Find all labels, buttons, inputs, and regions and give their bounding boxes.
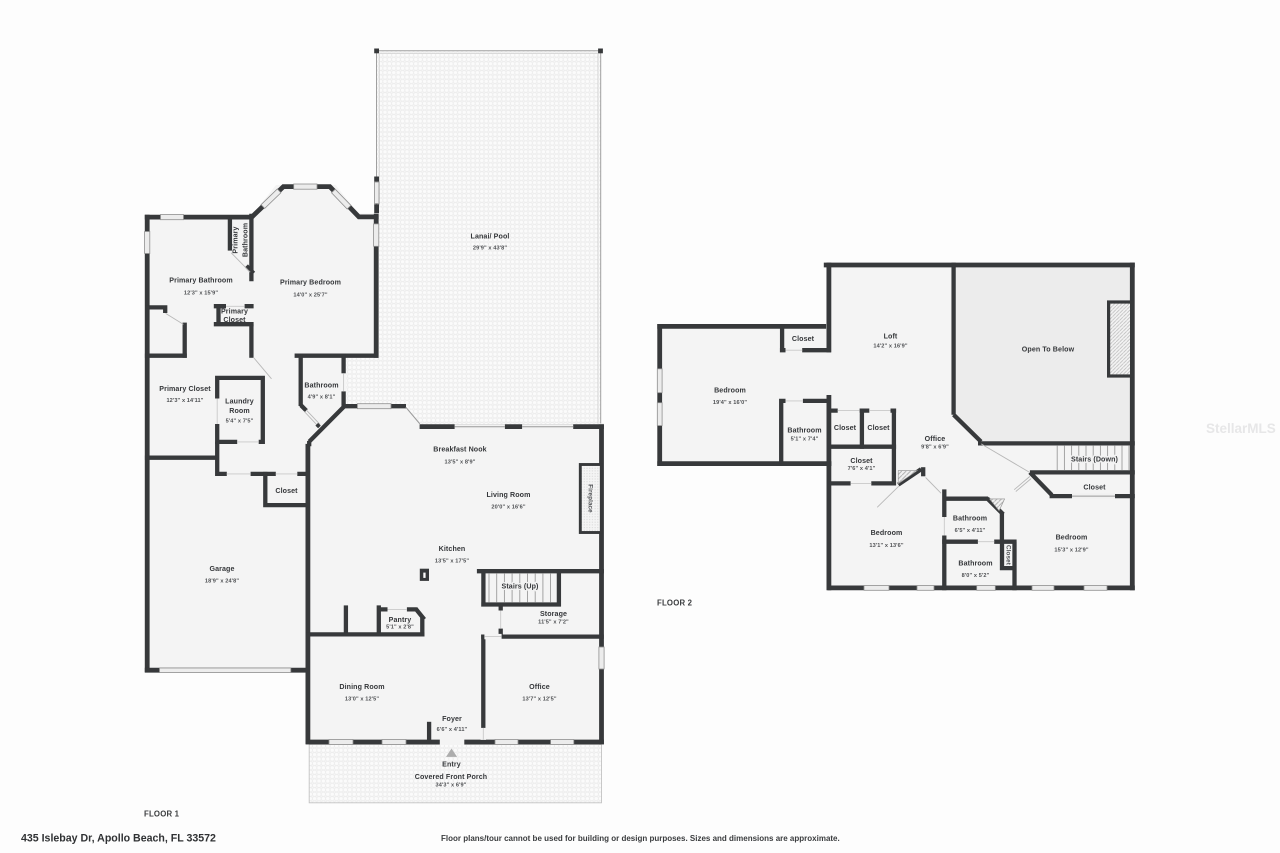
svg-text:Closet: Closet: [275, 487, 298, 495]
svg-text:Primary Bedroom: Primary Bedroom: [280, 279, 341, 287]
svg-text:Breakfast Nook: Breakfast Nook: [433, 446, 486, 454]
svg-text:5'4" x 7'5": 5'4" x 7'5": [226, 419, 254, 425]
svg-text:15'3" x 12'9": 15'3" x 12'9": [1054, 548, 1088, 554]
svg-text:12'3" x 14'11": 12'3" x 14'11": [166, 398, 203, 404]
svg-text:8'0" x 5'2": 8'0" x 5'2": [962, 573, 990, 579]
svg-text:13'0" x 12'5": 13'0" x 12'5": [345, 697, 379, 703]
svg-text:20'0" x 16'6": 20'0" x 16'6": [491, 505, 525, 511]
svg-text:Bathroom: Bathroom: [242, 223, 250, 257]
svg-text:Closet: Closet: [1083, 484, 1106, 492]
svg-text:Room: Room: [229, 407, 250, 415]
svg-text:Laundry: Laundry: [225, 398, 254, 406]
svg-text:Stairs (Down): Stairs (Down): [1071, 456, 1119, 464]
svg-text:Bathroom: Bathroom: [787, 427, 821, 435]
svg-text:Covered Front Porch: Covered Front Porch: [415, 773, 487, 781]
svg-text:Dining Room: Dining Room: [339, 683, 384, 691]
svg-text:Foyer: Foyer: [442, 715, 462, 723]
svg-text:Primary: Primary: [221, 308, 248, 316]
svg-text:Floor plans/tour cannot be use: Floor plans/tour cannot be used for buil…: [441, 834, 840, 843]
svg-text:14'0" x 25'7": 14'0" x 25'7": [293, 293, 327, 299]
svg-text:Closet: Closet: [792, 335, 815, 343]
svg-text:11'5" x 7'2": 11'5" x 7'2": [538, 620, 569, 626]
svg-text:Lanai/ Pool: Lanai/ Pool: [471, 233, 510, 241]
svg-text:Primary Bathroom: Primary Bathroom: [169, 277, 233, 285]
svg-text:Closet: Closet: [850, 457, 873, 465]
svg-text:Stairs (Up): Stairs (Up): [502, 583, 540, 591]
svg-text:FLOOR 2: FLOOR 2: [657, 599, 693, 608]
svg-text:Bedroom: Bedroom: [1056, 534, 1088, 542]
svg-text:Storage: Storage: [540, 610, 567, 618]
svg-text:6'6" x 4'11": 6'6" x 4'11": [437, 727, 468, 733]
svg-text:13'5" x 8'9": 13'5" x 8'9": [445, 460, 476, 466]
svg-text:Bedroom: Bedroom: [871, 529, 903, 537]
svg-text:7'6" x 4'1": 7'6" x 4'1": [848, 466, 876, 472]
svg-text:Living Room: Living Room: [486, 491, 530, 499]
svg-text:13'5" x 17'5": 13'5" x 17'5": [435, 559, 469, 565]
svg-text:435 Islebay Dr, Apollo Beach,: 435 Islebay Dr, Apollo Beach, FL 33572: [21, 833, 216, 845]
svg-text:19'4" x 16'0": 19'4" x 16'0": [713, 400, 747, 406]
svg-text:Primary Closet: Primary Closet: [159, 385, 211, 393]
svg-text:Bathroom: Bathroom: [958, 560, 992, 568]
svg-text:5'1" x 7'4": 5'1" x 7'4": [791, 437, 819, 443]
svg-text:Loft: Loft: [884, 333, 898, 341]
svg-text:StellarMLS: StellarMLS: [1206, 421, 1276, 436]
svg-text:14'2" x 16'9": 14'2" x 16'9": [873, 344, 907, 350]
svg-text:18'9" x 24'8": 18'9" x 24'8": [205, 579, 239, 585]
svg-text:Closet: Closet: [1005, 545, 1012, 566]
svg-text:Bathroom: Bathroom: [953, 515, 987, 523]
svg-text:34'3" x 6'9": 34'3" x 6'9": [436, 783, 467, 789]
svg-text:6'5" x 4'11": 6'5" x 4'11": [955, 528, 986, 534]
svg-text:Closet: Closet: [223, 316, 246, 324]
svg-text:13'7" x 12'5": 13'7" x 12'5": [522, 697, 556, 703]
svg-text:Entry: Entry: [442, 760, 461, 768]
svg-text:Kitchen: Kitchen: [439, 545, 466, 553]
svg-text:12'3" x 15'9": 12'3" x 15'9": [184, 291, 218, 297]
svg-text:Fireplace: Fireplace: [587, 484, 594, 513]
svg-text:Office: Office: [529, 683, 550, 691]
svg-text:Closet: Closet: [867, 424, 890, 432]
svg-text:Garage: Garage: [209, 565, 234, 573]
svg-text:29'9" x 43'8": 29'9" x 43'8": [473, 246, 507, 252]
svg-text:Open To Below: Open To Below: [1022, 346, 1075, 354]
svg-text:5'1" x 2'8": 5'1" x 2'8": [386, 625, 414, 631]
svg-text:Bathroom: Bathroom: [304, 382, 338, 390]
svg-text:Pantry: Pantry: [389, 616, 412, 624]
svg-text:13'1" x 13'6": 13'1" x 13'6": [869, 543, 903, 549]
svg-text:9'8" x 6'9": 9'8" x 6'9": [921, 445, 949, 451]
svg-text:FLOOR 1: FLOOR 1: [144, 810, 180, 819]
svg-text:Closet: Closet: [834, 424, 857, 432]
svg-text:Bedroom: Bedroom: [714, 387, 746, 395]
svg-text:Office: Office: [925, 435, 946, 443]
svg-text:4'9" x 8'1": 4'9" x 8'1": [308, 395, 336, 401]
svg-text:Primary: Primary: [232, 226, 240, 253]
